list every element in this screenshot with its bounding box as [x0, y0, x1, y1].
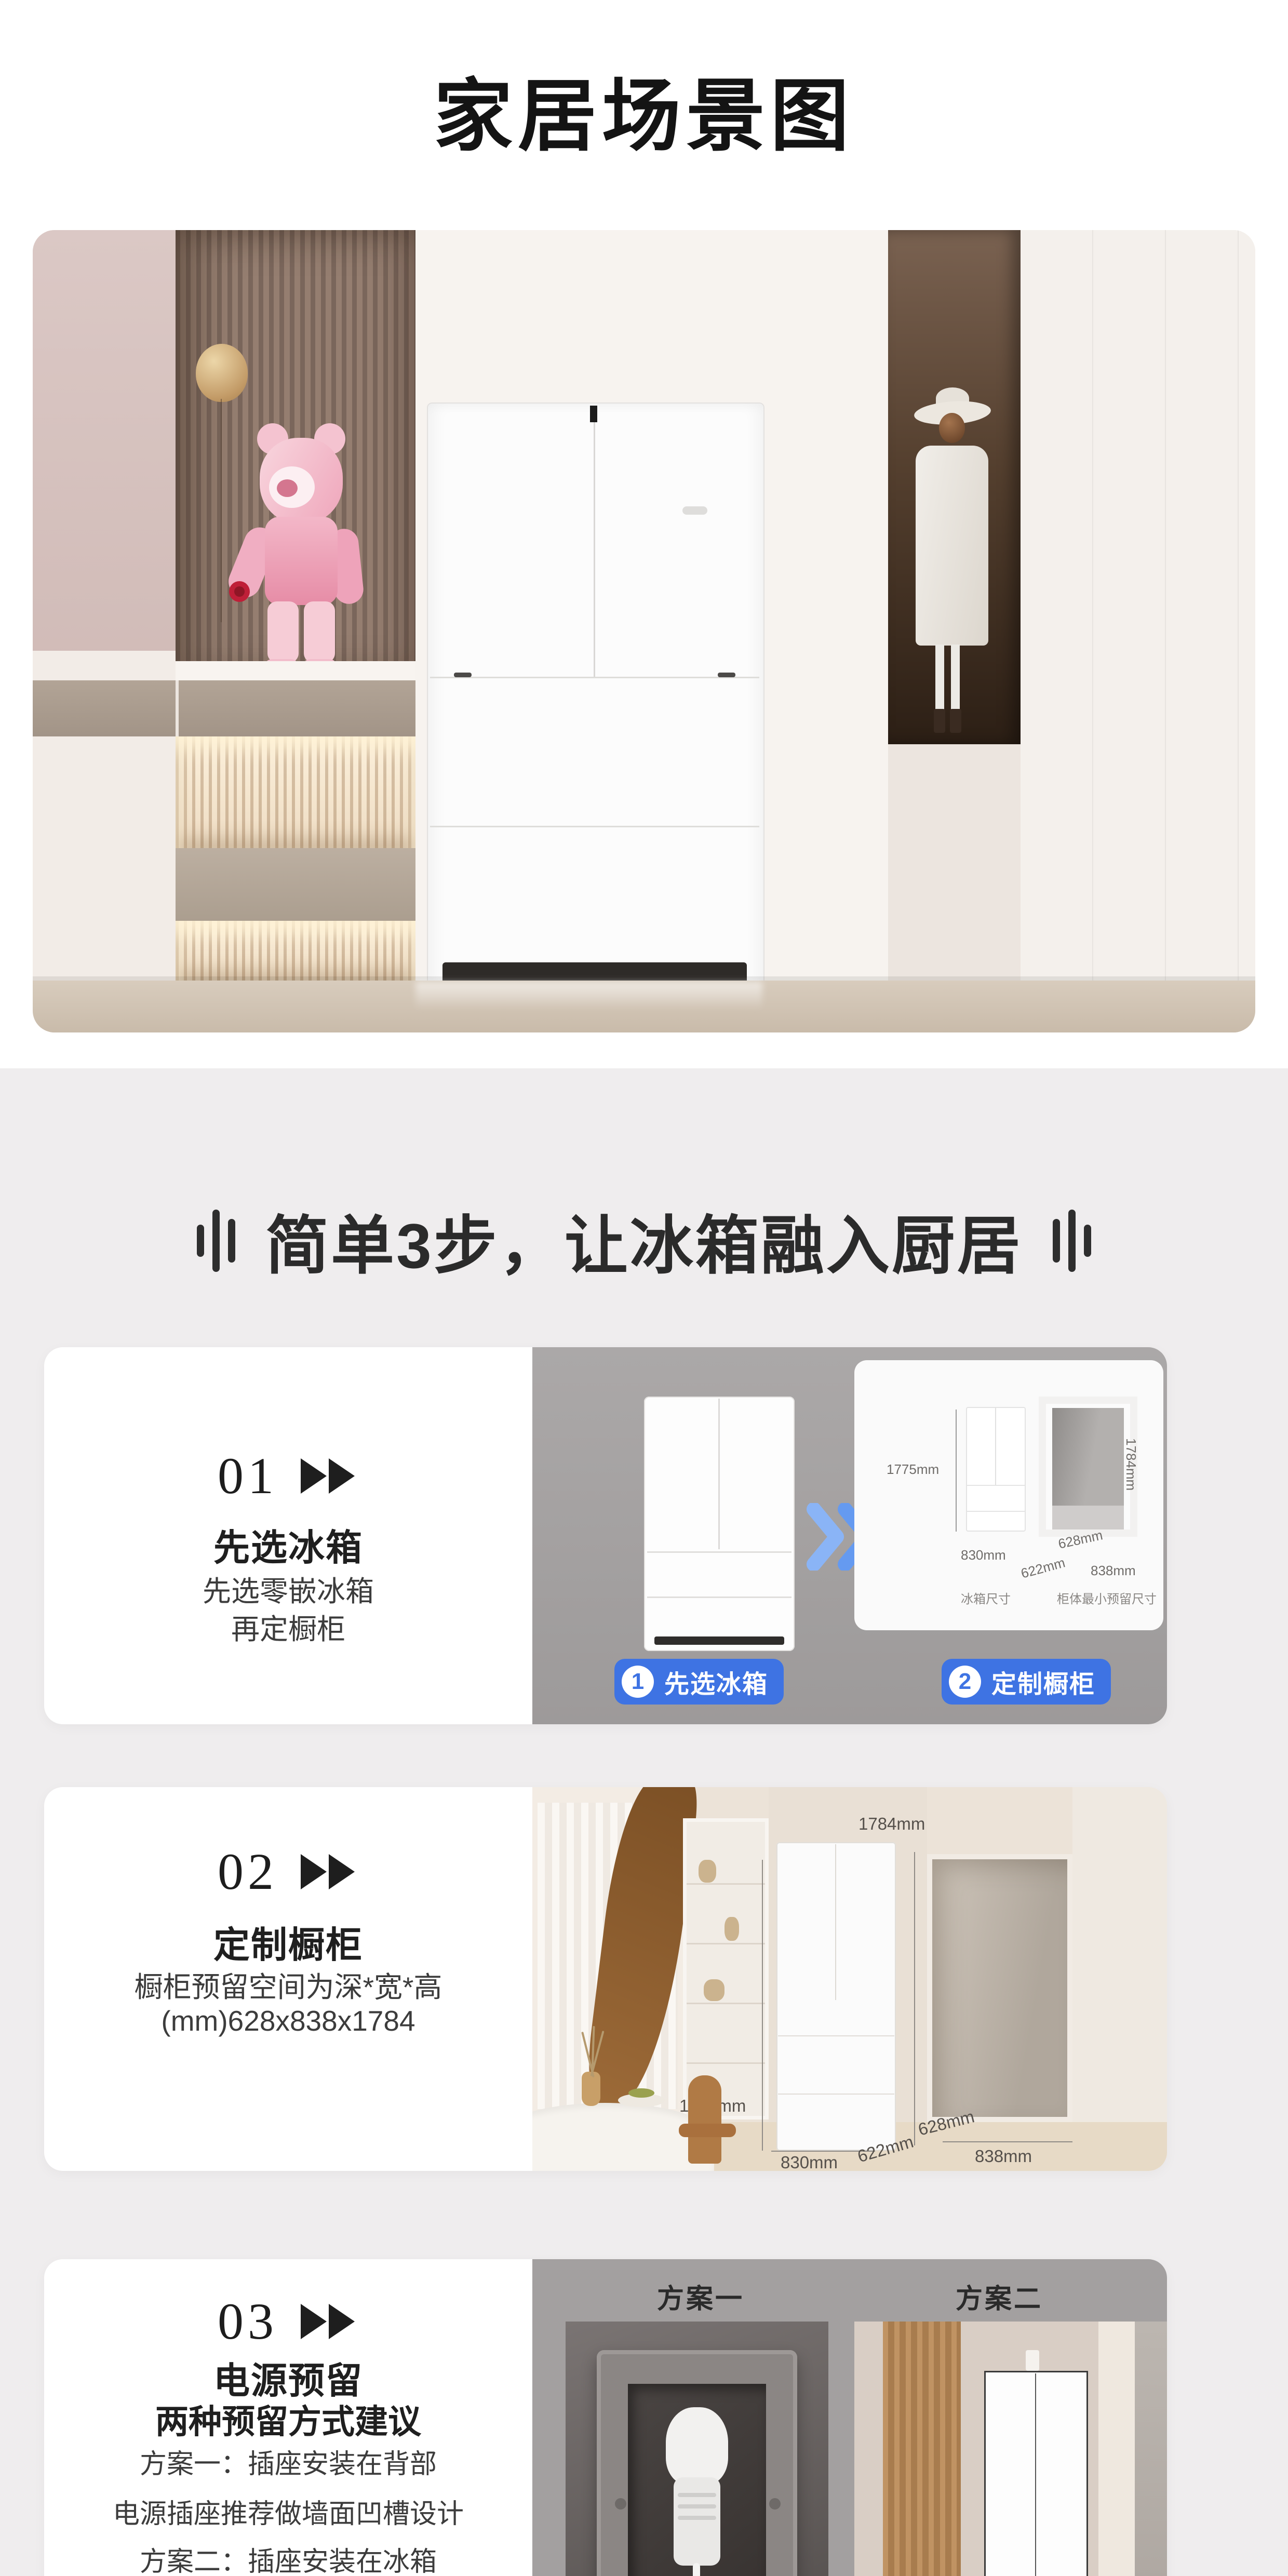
fast-forward-icon — [297, 1455, 359, 1497]
hero-drawer-band — [176, 680, 419, 736]
dim-line-cab-width — [943, 2141, 1072, 2142]
plan2-label: 方案二 — [956, 2277, 1043, 2316]
bear-figure-snout — [277, 479, 298, 497]
plan1-label: 方案一 — [657, 2277, 744, 2316]
room-fridge — [984, 2371, 1088, 2576]
step2-number: 02 — [218, 1842, 278, 1901]
step1-number: 01 — [218, 1446, 278, 1506]
step-card-2: 02 定制橱柜 橱柜预留空间为深*宽*高 (mm)628x838x1784 — [44, 1787, 1167, 2171]
socket-screw — [615, 2498, 626, 2510]
balloon-decor — [196, 344, 248, 402]
mannequin-head — [939, 413, 965, 443]
fridge-door-gap — [594, 406, 595, 677]
dim-label-cabinet-width: 838mm — [1091, 1563, 1136, 1579]
step3-text: 03 电源预留 两种预留方式建议 方案一：插座安装在背部 电源插座推荐做墙面凹槽… — [44, 2259, 532, 2576]
mannequin-boot — [934, 709, 945, 733]
hero-lit-niche — [176, 921, 415, 981]
badge1-label: 先选冰箱 — [664, 1663, 768, 1700]
bear-flower — [234, 586, 245, 597]
step-card-3: 03 电源预留 两种预留方式建议 方案一：插座安装在背部 电源插座推荐做墙面凹槽… — [44, 2259, 1167, 2576]
power-plug-head — [666, 2407, 728, 2485]
hero-right-wall — [1021, 230, 1255, 981]
step2-line1: 橱柜预留空间为深*宽*高 — [44, 1964, 532, 2005]
fridge-drawer-line — [430, 826, 759, 827]
section-title: 简单3步，让冰箱融入厨居 — [265, 1195, 1023, 1286]
fridge-body — [427, 403, 764, 989]
glass-cabinet — [683, 1818, 769, 2119]
mannequin-leg — [951, 645, 960, 712]
bars-deco-right-icon — [1053, 1210, 1091, 1272]
badge1-number: 1 — [622, 1666, 654, 1698]
balloon-string — [221, 399, 222, 622]
panel1-cabinet-diagram: 1775mm 1784mm 830mm 622mm 628mm 838mm 冰箱… — [854, 1360, 1163, 1630]
section-header: 简单3步，让冰箱融入厨居 — [0, 1195, 1288, 1286]
bear-figure-leg — [304, 601, 335, 663]
hero-counter — [176, 661, 415, 682]
fridge-door-handle-mark — [590, 406, 597, 422]
fridge-brand-logo — [682, 506, 707, 515]
bear-figure-leg — [267, 601, 299, 663]
step2-heading: 定制橱柜 — [44, 1916, 532, 1968]
step3-subheading: 两种预留方式建议 — [44, 2395, 532, 2443]
home-scene-image — [33, 230, 1255, 1032]
fast-forward-icon — [297, 1851, 359, 1893]
product-detail-page: 家居场景图 — [0, 0, 1288, 2576]
badge-step2: 2 定制橱柜 — [942, 1659, 1111, 1705]
step2-image-panel: 1784mm 1775mm 628mm 838mm 830mm 622mm — [532, 1787, 1167, 2171]
step3-number: 03 — [218, 2291, 278, 2351]
panel1-fridge — [644, 1397, 795, 1651]
wall-socket-mark — [1026, 2350, 1039, 2371]
power-plug-body — [674, 2477, 720, 2566]
dim-label-top: 1784mm — [858, 1814, 925, 1834]
step1-line1: 先选零嵌冰箱 — [44, 1568, 532, 1609]
dim-line-height — [762, 1860, 763, 2151]
step3-line1: 方案一：插座安装在背部 — [44, 2442, 532, 2481]
mannequin-leg — [935, 645, 944, 712]
kitchen-right-wall — [1072, 1787, 1167, 2130]
step1-image-panel: 1775mm 1784mm 830mm 622mm 628mm 838mm 冰箱… — [532, 1347, 1167, 1724]
step2-line2: (mm)628x838x1784 — [44, 2004, 532, 2037]
vase — [582, 2072, 600, 2106]
doorway — [1098, 2322, 1135, 2576]
step3-line2: 电源插座推荐做墙面凹槽设计 — [44, 2492, 532, 2531]
bars-deco-left-icon — [197, 1210, 235, 1272]
dim-label-fridge-width: 830mm — [781, 2153, 838, 2171]
fruit — [628, 2088, 654, 2098]
step1-text: 01 先选冰箱 先选零嵌冰箱 再定橱柜 — [44, 1347, 532, 1724]
cabinet-niche — [927, 1854, 1072, 2122]
wood-slat-wall — [883, 2322, 961, 2576]
fridge-handle-notch — [718, 673, 735, 677]
hero-floor-reflection — [415, 982, 762, 1010]
dim-label-cabinet-height: 1784mm — [1123, 1438, 1139, 1491]
dining-chair-seat — [679, 2124, 736, 2137]
dim-label-fridge-height: 1775mm — [887, 1461, 939, 1478]
page-title: 家居场景图 — [0, 52, 1288, 166]
caption-cabinet-min-size: 柜体最小预留尺寸 — [1057, 1589, 1157, 1607]
dining-chair — [688, 2075, 721, 2164]
mannequin-boot — [950, 709, 961, 733]
plan1-photo-socket — [566, 2322, 828, 2576]
step-card-1: 01 先选冰箱 先选零嵌冰箱 再定橱柜 — [44, 1347, 1167, 1724]
steps-section: 简单3步，让冰箱融入厨居 01 先选冰箱 先选零嵌冰箱 再定橱柜 — [0, 1068, 1288, 2576]
dim-label-fridge-width: 830mm — [961, 1547, 1006, 1563]
hero-fridge — [427, 403, 762, 987]
bear-figure-body — [265, 517, 338, 605]
caption-fridge-size: 冰箱尺寸 — [961, 1589, 1011, 1607]
fridge-handle-notch — [454, 673, 472, 677]
step1-line2: 再定橱柜 — [44, 1606, 532, 1647]
fast-forward-icon — [297, 2301, 359, 2342]
dim-label-width: 838mm — [975, 2146, 1032, 2166]
step2-text: 02 定制橱柜 橱柜预留空间为深*宽*高 (mm)628x838x1784 — [44, 1787, 532, 2171]
step3-image-panel: 方案一 方案二 — [532, 2259, 1167, 2576]
socket-screw — [769, 2498, 781, 2510]
hero-left-drawer-band — [33, 680, 176, 736]
badge2-label: 定制橱柜 — [991, 1663, 1095, 1700]
kitchen-fridge — [776, 1842, 896, 2151]
step1-heading: 先选冰箱 — [44, 1519, 532, 1571]
dim-label-fridge-depth: 622mm — [1019, 1554, 1067, 1581]
mannequin-coat — [916, 446, 988, 646]
badge-step1: 1 先选冰箱 — [614, 1659, 784, 1705]
plan2-photo-room — [854, 2322, 1167, 2576]
hero-drawer — [176, 848, 415, 921]
badge2-number: 2 — [949, 1666, 981, 1698]
hero-lit-niche — [176, 736, 415, 848]
step3-line3: 方案二：插座安装在冰箱 — [44, 2540, 532, 2576]
fridge-drawer-line — [430, 677, 759, 678]
dim-line-cab-height — [914, 1852, 915, 2145]
dim-line — [956, 1410, 957, 1532]
power-cord — [693, 2563, 700, 2576]
corridor-wall — [1135, 2322, 1167, 2576]
